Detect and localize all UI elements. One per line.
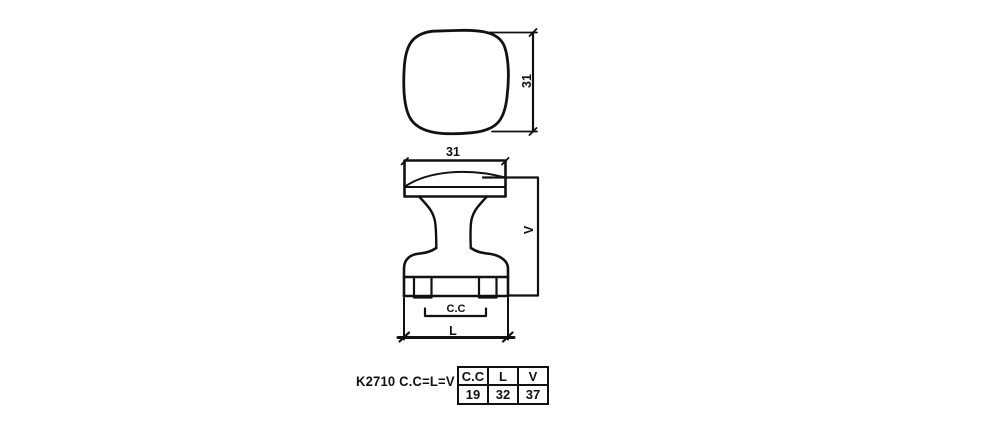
spec-table-header-l: L (488, 367, 518, 385)
spec-table-value-v: 37 (518, 385, 548, 404)
v-dim-label: V (522, 225, 536, 234)
l-dim-label: L (449, 324, 457, 338)
spec-table-value-l: 32 (488, 385, 518, 404)
cc-dim-label: C.C (447, 303, 466, 315)
spec-table-header-row: C.C L V (458, 367, 548, 385)
side-view-width-label: 31 (446, 145, 460, 159)
neck-right-line (470, 197, 487, 249)
screw-hole-left (414, 278, 432, 298)
spec-table: C.C L V 19 32 37 (457, 366, 549, 405)
drawing-sheet: 31 31 V C.C L K2710 C.C=L=V C.C L V 19 3… (0, 0, 999, 442)
top-view-width-label: 31 (520, 74, 534, 88)
model-label: K2710 C.C=L=V (356, 374, 455, 390)
spec-table-header-cc: C.C (458, 367, 488, 385)
spec-table-value-row: 19 32 37 (458, 385, 548, 404)
spec-table-header-v: V (518, 367, 548, 385)
neck-left-line (419, 197, 436, 249)
base-outline-right (471, 248, 508, 296)
top-view-outline (404, 30, 509, 133)
cap-dome-arc (405, 172, 505, 187)
screw-hole-right (479, 278, 497, 298)
spec-table-value-cc: 19 (458, 385, 488, 404)
